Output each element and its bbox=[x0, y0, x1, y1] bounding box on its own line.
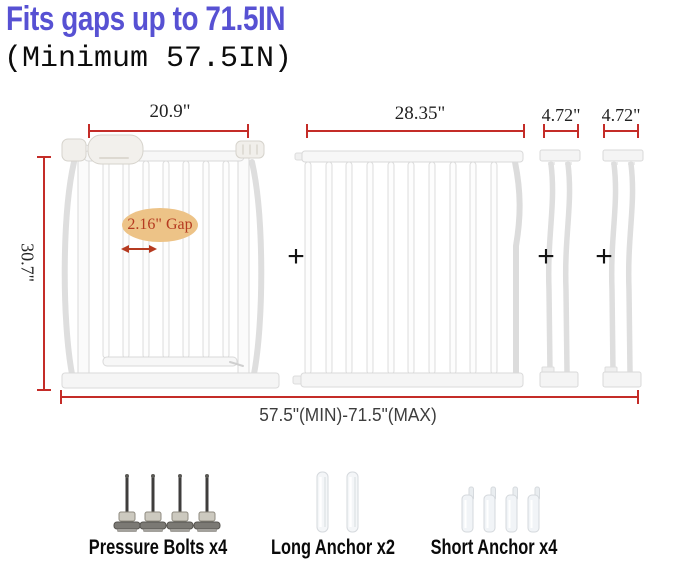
pressure-bolt-icon bbox=[114, 474, 140, 532]
short-anchor-icon bbox=[506, 487, 518, 532]
main-gate-graphic bbox=[62, 135, 279, 388]
plus-sign: + bbox=[531, 240, 561, 274]
gap-arrow-icon bbox=[129, 248, 149, 250]
gate-diagram-graphic bbox=[0, 0, 679, 566]
short-anchor-label: Short Anchor x4 bbox=[431, 536, 558, 560]
product-image-canvas: Fits gaps up to 71.5IN (Minimum 57.5IN) … bbox=[0, 0, 679, 566]
short-anchor-icon bbox=[462, 487, 474, 532]
gap-callout: 2.16" Gap bbox=[122, 208, 198, 242]
extension-panel-graphic bbox=[293, 151, 523, 387]
gate-width-dimension-line bbox=[89, 130, 248, 132]
pressure-bolt-icon bbox=[194, 474, 220, 532]
long-anchor-label: Long Anchor x2 bbox=[271, 536, 395, 560]
plus-sign: + bbox=[589, 240, 619, 274]
total-width-dimension-line bbox=[61, 396, 638, 398]
page-subtitle: (Minimum 57.5IN) bbox=[4, 42, 292, 76]
short-anchor-icon bbox=[528, 487, 540, 532]
small-extension-2-dimension-line bbox=[604, 130, 638, 132]
plus-sign: + bbox=[281, 240, 311, 274]
extension-width-dimension-line bbox=[307, 130, 524, 132]
height-dimension-line bbox=[43, 157, 45, 390]
small-extension-1-dimension-line bbox=[544, 130, 578, 132]
extension-width-label: 28.35" bbox=[360, 103, 480, 125]
pressure-bolt-icon bbox=[140, 474, 166, 532]
page-title: Fits gaps up to 71.5IN bbox=[6, 0, 285, 39]
pressure-bolt-icon bbox=[167, 474, 193, 532]
long-anchor-icon bbox=[317, 472, 328, 532]
small-extension-2-label: 4.72" bbox=[583, 105, 659, 126]
total-width-label: 57.5"(MIN)-71.5"(MAX) bbox=[204, 405, 492, 426]
gate-width-label: 20.9" bbox=[110, 101, 230, 123]
height-label: 30.7" bbox=[17, 229, 38, 297]
long-anchor-icon bbox=[347, 472, 358, 532]
short-anchor-icon bbox=[484, 487, 496, 532]
pressure-bolts-label: Pressure Bolts x4 bbox=[89, 536, 227, 560]
